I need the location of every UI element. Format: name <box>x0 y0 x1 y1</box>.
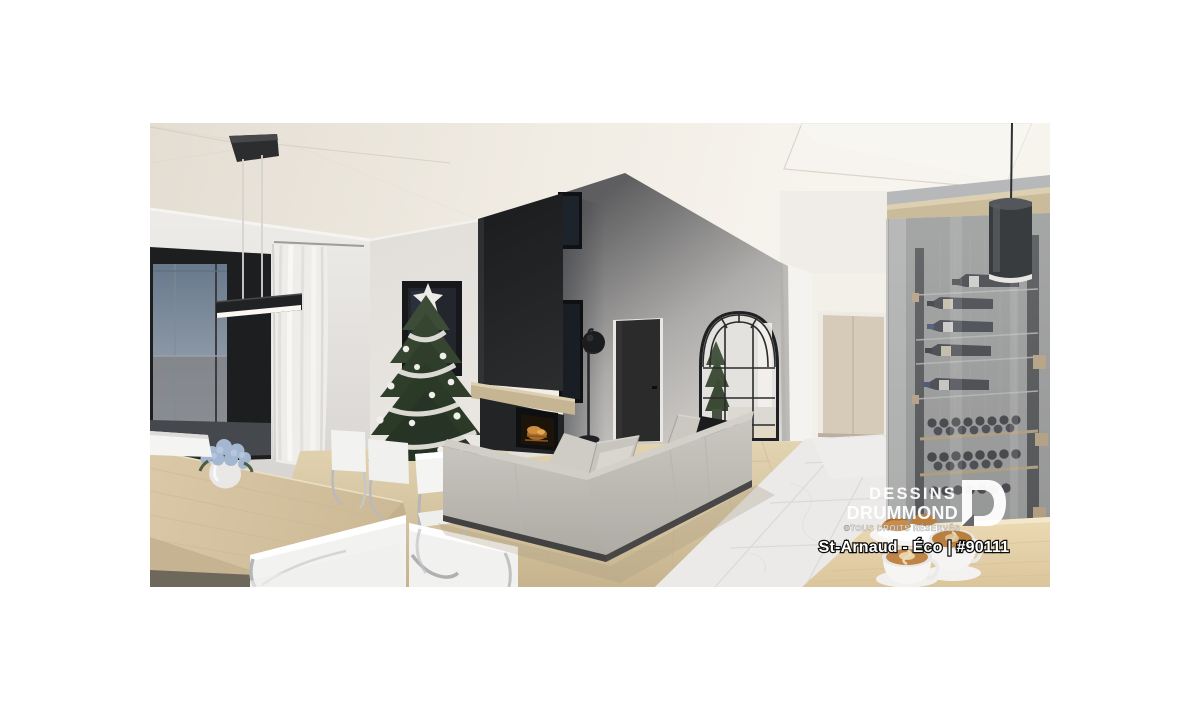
svg-text:DESSINS: DESSINS <box>869 485 957 503</box>
svg-text:St-Arnaud - Éco | #90111: St-Arnaud - Éco | #90111 <box>819 537 1010 556</box>
svg-text:DRUMMOND: DRUMMOND <box>847 503 958 523</box>
svg-text:©TOUS DROITS RÉSERVÉS: ©TOUS DROITS RÉSERVÉS <box>844 524 961 533</box>
